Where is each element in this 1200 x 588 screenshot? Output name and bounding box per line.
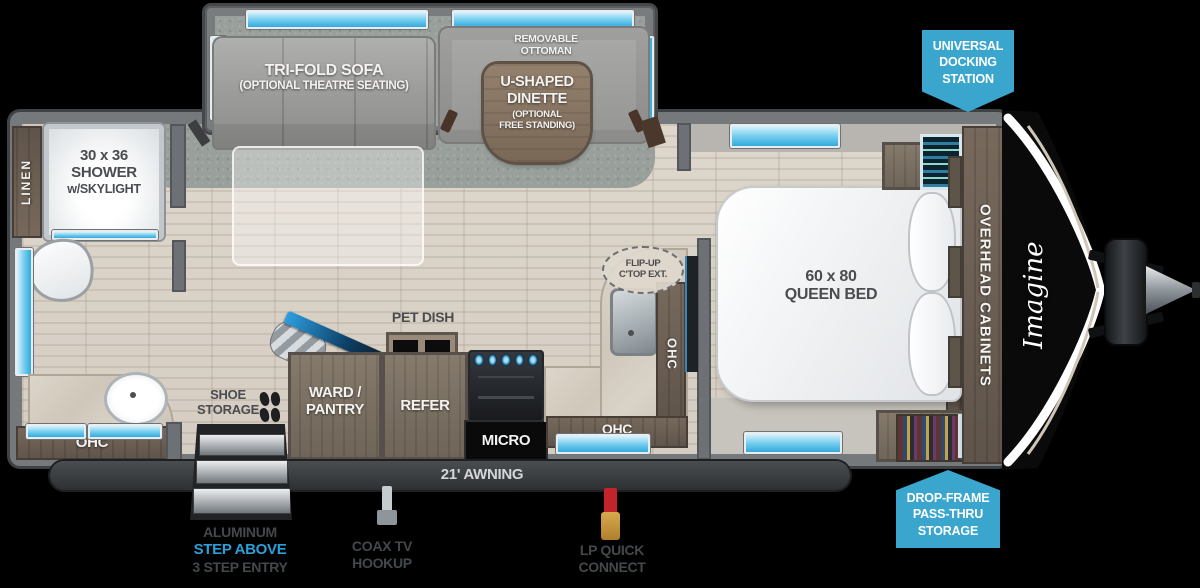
- coax-connector-base-icon: [377, 510, 397, 525]
- lp-connector-base-icon: [601, 512, 620, 540]
- lp-label-line1: LP QUICK: [552, 542, 672, 559]
- pet-dish-label: PET DISH: [386, 310, 460, 326]
- step-entry-label: ALUMINUM STEP ABOVE 3 STEP ENTRY: [172, 524, 308, 576]
- sink-drain-icon: [130, 392, 136, 398]
- cooktop-icon: [468, 350, 544, 422]
- dinette-label-line1: U-SHAPED: [484, 74, 590, 91]
- lp-connector-icon: [604, 488, 617, 514]
- shower-label-line1: 30 x 36: [44, 148, 164, 165]
- ward-label-line1: WARD /: [288, 384, 382, 401]
- sofa-label-line1: TRI-FOLD SOFA: [216, 62, 432, 80]
- bathroom-wall: [172, 240, 186, 292]
- microwave: MICRO: [464, 420, 548, 462]
- cabinet-box: [948, 336, 962, 388]
- propane-tank-icon: [1104, 238, 1148, 346]
- burners-icon: [468, 350, 544, 370]
- coax-label-line1: COAX TV: [330, 538, 434, 555]
- floorplan-canvas: TRI-FOLD SOFA (OPTIONAL THEATRE SEATING)…: [0, 0, 1200, 588]
- bathroom-sink-icon: [104, 372, 168, 426]
- entry-steps-icon: [190, 424, 292, 520]
- cabinet-box: [948, 246, 962, 298]
- coax-label-line2: HOOKUP: [330, 555, 434, 572]
- kitchen-window-icon: [556, 434, 650, 454]
- shower-label-line2: SHOWER: [44, 165, 164, 182]
- flip-up-counter-label: FLIP-UP C'TOP EXT.: [602, 246, 684, 294]
- linen-cabinet: LINEN: [12, 126, 42, 238]
- bedroom-window-icon: [744, 432, 842, 454]
- kitchen-ohc-side: OHC: [656, 282, 686, 426]
- refer-label: REFER: [400, 397, 449, 414]
- coax-label: COAX TV HOOKUP: [330, 538, 434, 572]
- dinette-label: U-SHAPED DINETTE (OPTIONAL FREE STANDING…: [484, 74, 590, 132]
- kitchen-sink-icon: [610, 288, 658, 356]
- bedroom-window-icon: [730, 124, 840, 148]
- removable-ottoman-label: REMOVABLE OTTOMAN: [488, 33, 604, 57]
- shower: 30 x 36 SHOWER w/SKYLIGHT: [44, 124, 164, 240]
- entry-wall-stub: [166, 422, 182, 462]
- bed-label-line2: QUEEN BED: [756, 286, 906, 304]
- slide-window-icon: [246, 10, 428, 29]
- rear-window-icon: [88, 424, 162, 439]
- sofa-label: TRI-FOLD SOFA (OPTIONAL THEATRE SEATING): [216, 62, 432, 94]
- cabinet-box: [948, 156, 962, 208]
- step-entry-line2: STEP ABOVE: [172, 541, 308, 559]
- lp-label: LP QUICK CONNECT: [552, 542, 672, 576]
- flip-label-line2: C'TOP EXT.: [619, 270, 667, 281]
- sofa-label-line2: (OPTIONAL THEATRE SEATING): [216, 80, 432, 93]
- ward-pantry-cabinet: WARD / PANTRY: [288, 352, 382, 460]
- bathroom-window-icon: [15, 248, 33, 376]
- shower-label-line3: w/SKYLIGHT: [44, 182, 164, 196]
- bedroom-tv-icon: [685, 256, 698, 372]
- rear-window-icon: [26, 424, 86, 439]
- lp-label-line2: CONNECT: [552, 559, 672, 576]
- docking-station-badge: UNIVERSAL DOCKING STATION: [922, 30, 1014, 112]
- step-entry-line3: 3 STEP ENTRY: [172, 559, 308, 576]
- dinette-label-line4: FREE STANDING): [484, 121, 590, 132]
- hitch-tip-icon: [1192, 282, 1200, 298]
- bedroom-divider-wall: [697, 238, 711, 460]
- shoe-label-line2: STORAGE: [184, 403, 272, 418]
- bed-label: 60 x 80 QUEEN BED: [756, 268, 906, 304]
- micro-label: MICRO: [482, 432, 531, 449]
- bedroom-wall-stub: [677, 123, 691, 171]
- bathroom-wall: [170, 124, 186, 208]
- nightstand: [882, 142, 924, 190]
- optional-seating-outline: [232, 146, 424, 266]
- kitchen-sink-drain-icon: [628, 330, 634, 336]
- ward-label-line2: PANTRY: [288, 401, 382, 418]
- hanging-clothes-icon: [896, 414, 964, 462]
- awning-label: 21' AWNING: [402, 466, 562, 483]
- storage-badge: DROP-FRAME PASS-THRU STORAGE: [896, 470, 1000, 548]
- bed-label-line1: 60 x 80: [756, 268, 906, 286]
- refer-cabinet: REFER: [382, 352, 468, 460]
- dinette-label-line2: DINETTE: [484, 91, 590, 108]
- imagine-logo: Imagine: [1008, 205, 1060, 385]
- step-entry-line1: ALUMINUM: [172, 524, 308, 541]
